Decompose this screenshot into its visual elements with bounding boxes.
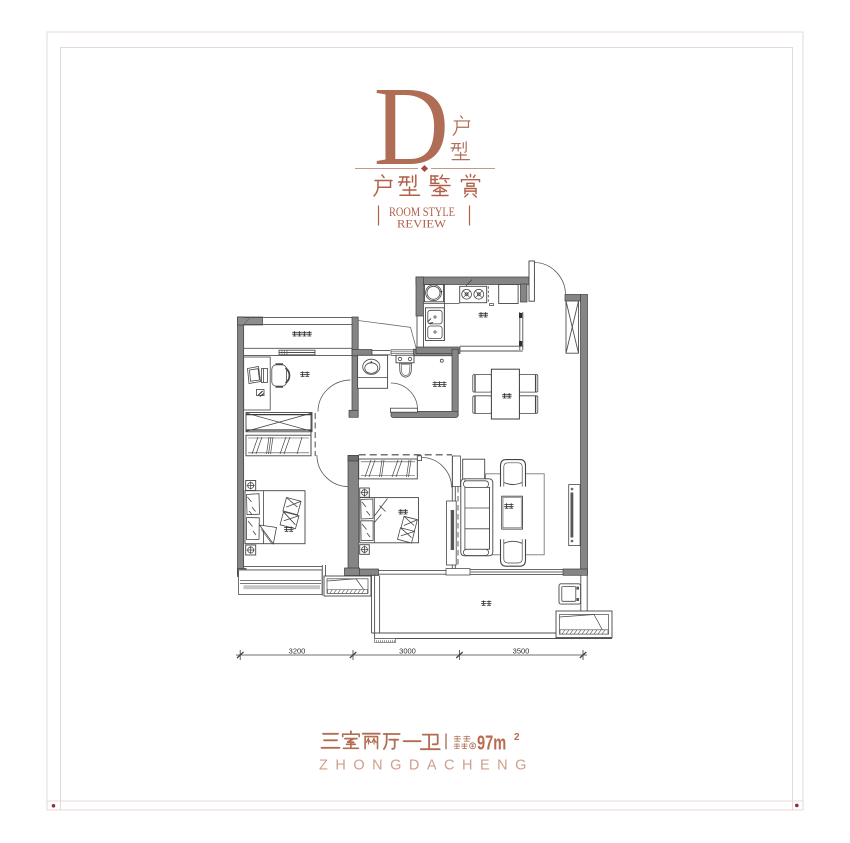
svg-text:ZHONGDACHENG: ZHONGDACHENG (319, 758, 534, 774)
svg-text:3200: 3200 (289, 647, 306, 656)
svg-text:97m: 97m (477, 731, 506, 754)
svg-text:2: 2 (514, 732, 520, 743)
svg-text:3000: 3000 (399, 647, 416, 656)
svg-text:3500: 3500 (513, 647, 530, 656)
svg-text:REVIEW: REVIEW (397, 217, 447, 231)
svg-text:D: D (374, 66, 449, 189)
